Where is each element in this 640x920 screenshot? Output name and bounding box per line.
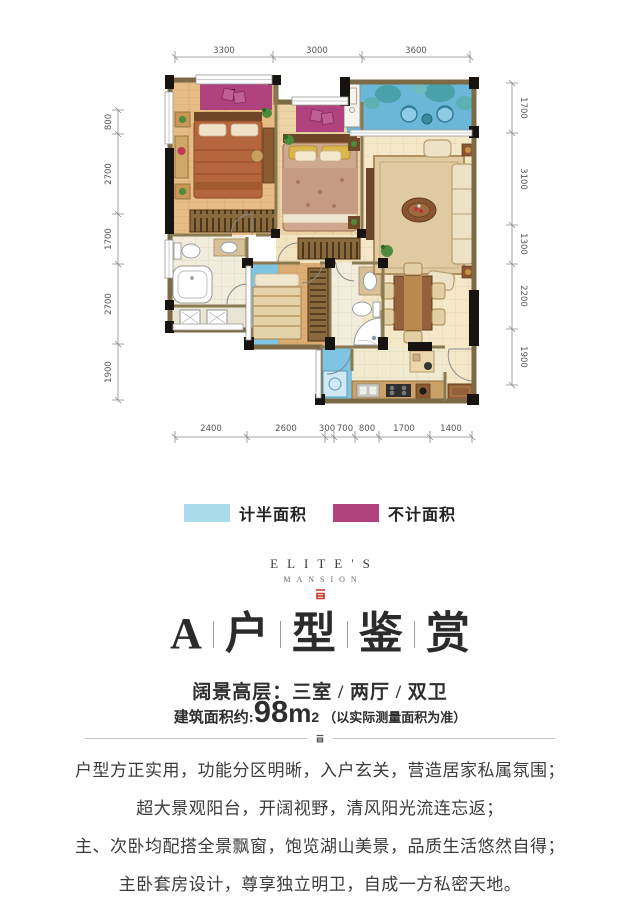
dim-label: 1300 [518,233,528,255]
area-line: 建筑面积约: 98 m 2 （以实际测量面积为准） [0,696,640,729]
dim-label: 2700 [104,163,114,185]
dimension-labels-right: 1700 3100 1300 2200 1900 [518,97,528,368]
area-unit: m [288,698,311,729]
description-line: 主卧套房设计，尊享独立明卫，自成一方私密天地。 [0,870,640,895]
half-area-swatch-icon [184,504,230,522]
legend-label: 不计面积 [388,501,456,525]
legend-item-excluded-area: 不计面积 [333,501,456,525]
floor-plan-svg: 3300 3000 3600 800 2700 1700 2700 1900 1… [0,0,640,470]
title-char: 型 [292,612,336,656]
legend: 计半面积 不计面积 [0,501,640,525]
brand-subname: MANSION [0,575,640,584]
dim-label: 1700 [393,424,415,434]
page-title: A 户 型 鉴 赏 [0,612,640,656]
dim-label: 1900 [104,361,114,383]
dim-label: 3600 [405,46,427,56]
dim-label: 2400 [200,424,222,434]
area-note: （以实际测量面积为准） [323,707,466,726]
dim-label: 3000 [306,46,328,56]
description-paragraphs: 户型方正实用，功能分区明晰，入户玄关，营造居家私属氛围； 超大景观阳台，开阔视野… [0,756,640,908]
brand-mark-icon [0,588,640,600]
brochure-page: 3300 3000 3600 800 2700 1700 2700 1900 1… [0,0,640,920]
dimension-labels-bottom: 2400 2600 300 700 800 1700 1400 [200,424,462,434]
area-superscript: 2 [311,709,319,725]
dim-label: 2600 [275,424,297,434]
dim-label: 300 [319,424,335,434]
legend-item-half-area: 计半面积 [184,501,307,525]
area-prefix: 建筑面积约: [174,706,254,727]
divider-line [333,738,555,739]
title-char: 户 [225,612,269,656]
divider-mark-icon [315,734,325,743]
excluded-area-swatch-icon [333,504,379,522]
dim-label: 2200 [518,285,528,307]
dim-label: 1700 [518,97,528,119]
section-divider [85,734,555,743]
title-separator [213,621,214,648]
dim-label: 1700 [104,228,114,250]
dimension-labels-left: 800 2700 1700 2700 1900 [104,114,114,383]
dim-label: 800 [359,424,375,434]
title-separator [347,621,348,648]
legend-label: 计半面积 [239,501,307,525]
dim-label: 700 [337,424,353,434]
description-line: 户型方正实用，功能分区明晰，入户玄关，营造居家私属氛围； [0,756,640,781]
bedroom-3-furniture [253,263,328,341]
floor-plan: 3300 3000 3600 800 2700 1700 2700 1900 1… [0,0,640,470]
brand-block: ELITE'S MANSION [0,556,640,600]
divider-line [85,738,307,739]
title-separator [414,621,415,648]
dim-label: 3100 [518,168,528,190]
title-separator [280,621,281,648]
brand-name: ELITE'S [0,556,640,572]
description-line: 主、次卧均配搭全景飘窗，饱览湖山美景，品质生活悠然自得； [0,832,640,857]
dim-label: 3300 [213,46,235,56]
dim-label: 800 [104,114,114,130]
title-char: 赏 [426,612,470,656]
title-char: A [170,612,202,656]
description-line: 超大景观阳台，开阔视野，清风阳光流连忘返； [0,794,640,819]
area-value: 98 [254,696,288,727]
title-char: 鉴 [359,612,403,656]
dim-label: 1400 [440,424,462,434]
dim-label: 2700 [104,293,114,315]
dimension-labels-top: 3300 3000 3600 [213,46,427,56]
dim-label: 1900 [518,346,528,368]
